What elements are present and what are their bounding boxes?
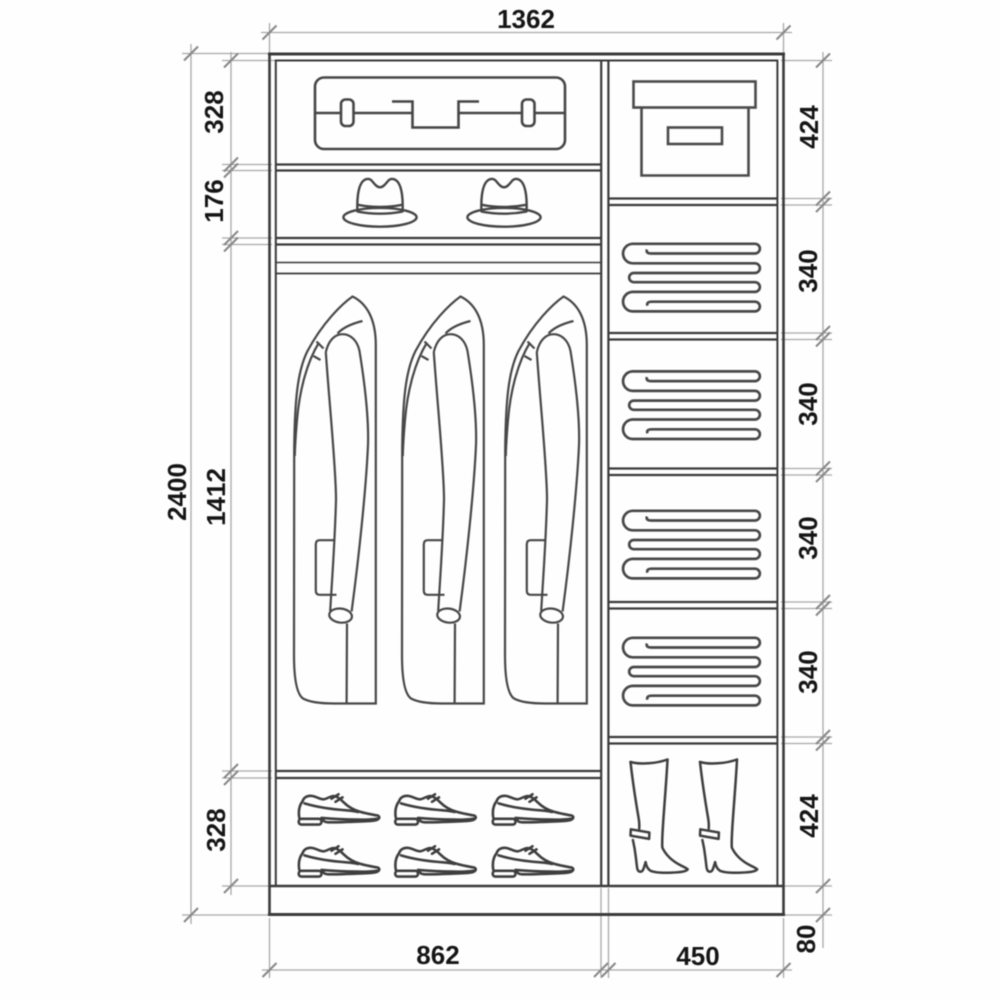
svg-text:450: 450 [676,941,719,971]
svg-text:862: 862 [416,940,459,970]
svg-text:2400: 2400 [162,463,192,521]
svg-text:80: 80 [791,925,821,954]
svg-text:424: 424 [794,105,824,149]
svg-text:328: 328 [199,90,229,133]
svg-text:340: 340 [793,516,823,559]
svg-text:176: 176 [199,179,229,222]
svg-text:1412: 1412 [201,468,231,526]
svg-text:340: 340 [793,249,823,292]
svg-text:1362: 1362 [497,4,555,34]
svg-text:328: 328 [201,808,231,851]
svg-text:340: 340 [793,382,823,425]
svg-text:340: 340 [793,650,823,693]
svg-text:424: 424 [794,794,824,838]
